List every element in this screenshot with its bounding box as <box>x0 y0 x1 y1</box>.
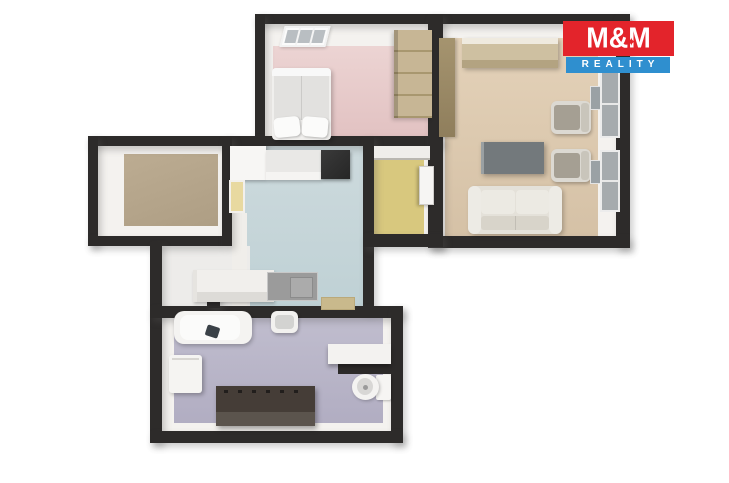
sofa-arm <box>468 186 481 234</box>
bed-pillow <box>301 116 329 138</box>
sofa-cushion <box>481 190 515 214</box>
side-room-floor <box>124 154 218 226</box>
kitchen-counter <box>193 270 274 302</box>
floorplan-canvas: M&M ✦ REALITY <box>0 0 729 483</box>
vanity-handles <box>224 390 307 393</box>
sink-basin <box>290 277 313 298</box>
entry-hall-floor <box>374 158 424 234</box>
washbasin-bowl <box>275 315 294 329</box>
wall-segment <box>363 234 443 247</box>
vanity-cabinet <box>216 386 315 426</box>
washing-machine <box>169 355 202 393</box>
counter-front <box>197 292 274 302</box>
toilet-bowl <box>352 374 379 400</box>
hall-overhead-shelf <box>374 146 430 160</box>
skylight-window <box>279 26 330 47</box>
logo-mm-text: M&M <box>586 24 650 52</box>
vanity-front <box>216 412 315 426</box>
refrigerator <box>321 150 350 179</box>
window-mullion <box>602 103 618 105</box>
sideboard-top-edge <box>462 38 558 44</box>
cabinet-front <box>266 172 321 180</box>
armchair-seat <box>554 105 580 130</box>
sofa-cushion <box>516 190 549 214</box>
bedroom-wardrobe <box>394 30 432 118</box>
sideboard-front <box>462 60 558 68</box>
logo-star-icon: ✦ <box>626 36 636 48</box>
window-mullion <box>602 180 618 182</box>
kitchen-upper-cabinet <box>230 146 266 180</box>
armchair-back <box>581 151 589 180</box>
logo-reality-text: REALITY <box>577 60 660 70</box>
washbasin <box>271 311 298 333</box>
toilet-drain <box>363 385 368 390</box>
skylight-panes <box>284 30 325 43</box>
living-sideboard <box>462 38 558 68</box>
toilet-shelf <box>328 344 391 364</box>
sofa <box>468 186 562 234</box>
bed-headboard <box>272 68 331 76</box>
wall-segment <box>363 136 374 311</box>
coffee-table <box>481 142 544 174</box>
sofa-arm <box>549 186 562 234</box>
doormat <box>321 297 355 310</box>
window <box>600 150 620 212</box>
armchair-seat <box>554 153 580 178</box>
mm-reality-logo-subtitle: REALITY <box>566 57 670 73</box>
wall-segment <box>88 136 98 246</box>
wall-segment <box>150 431 403 443</box>
living-tall-cabinet <box>439 38 455 137</box>
window <box>600 70 620 138</box>
bathtub <box>174 311 252 344</box>
bed-duvet <box>274 76 329 120</box>
wall-segment <box>150 242 162 443</box>
armchair <box>551 101 591 134</box>
hall-door <box>419 166 434 205</box>
wall-segment <box>88 136 443 146</box>
bed-pillow <box>273 116 301 139</box>
cooktop-sink-unit <box>267 272 318 301</box>
mm-reality-logo: M&M ✦ <box>563 21 674 56</box>
kitchen-upper-cabinet <box>266 150 321 180</box>
kitchen-tall-cabinet <box>229 180 245 213</box>
wall-segment <box>428 236 630 248</box>
double-bed <box>272 68 331 140</box>
armchair-back <box>581 103 589 132</box>
armchair <box>551 149 591 182</box>
wall-segment <box>391 306 403 443</box>
sofa-back <box>481 216 549 230</box>
toilet <box>350 373 391 401</box>
wall-segment <box>255 14 265 146</box>
washing-machine-lid <box>172 358 199 360</box>
